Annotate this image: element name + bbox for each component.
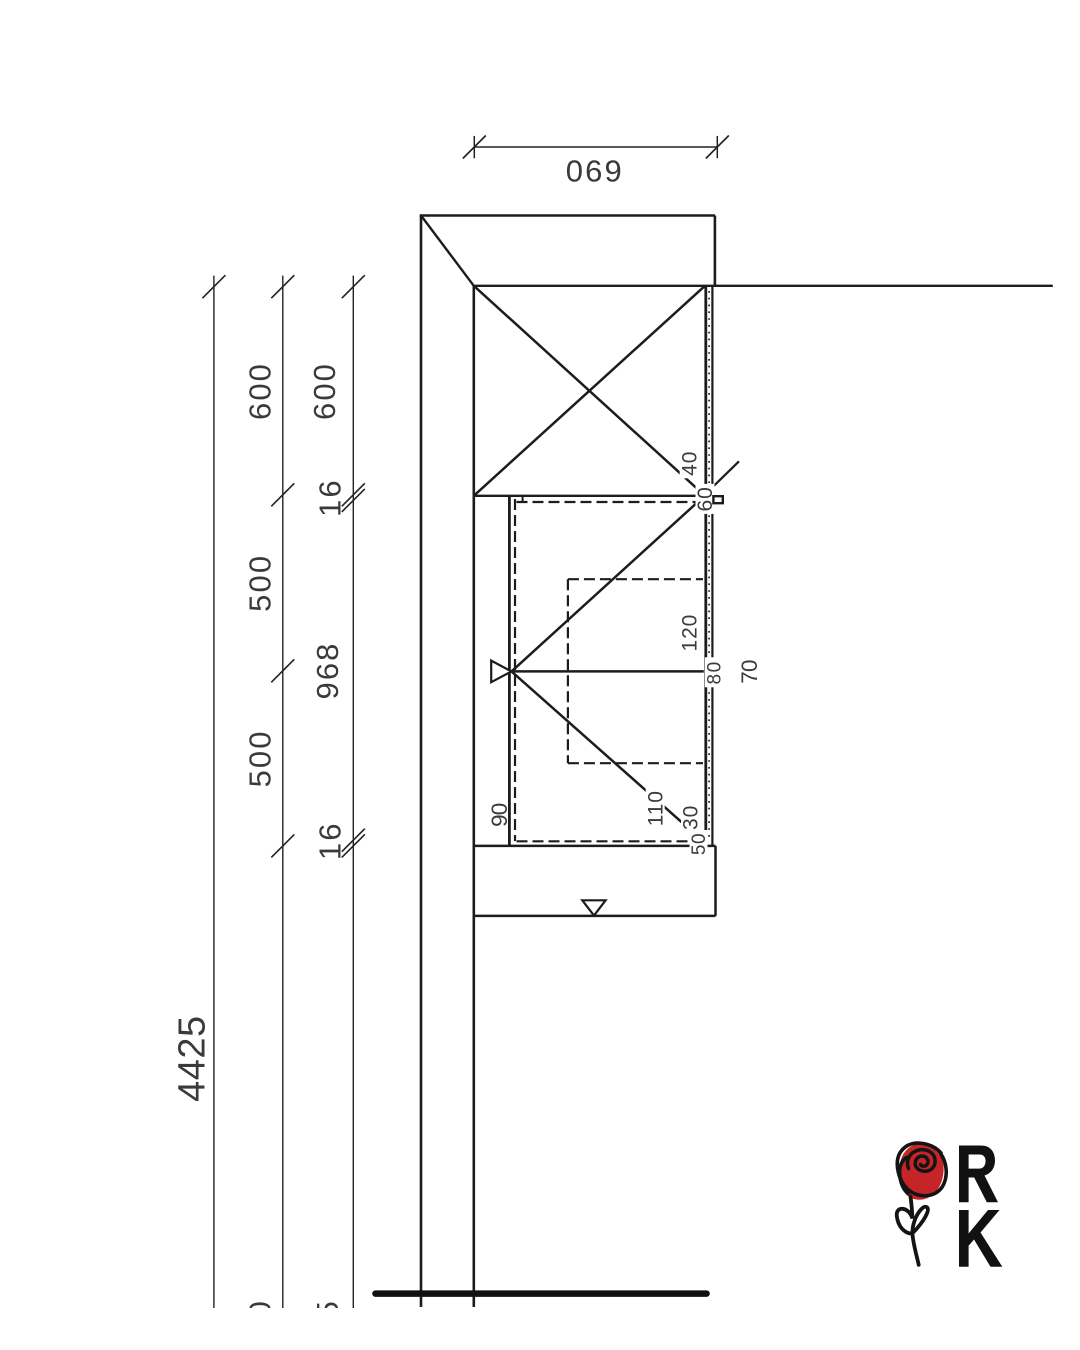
svg-text:16: 16 xyxy=(313,478,348,517)
svg-text:500: 500 xyxy=(243,554,278,612)
svg-text:069: 069 xyxy=(566,154,624,189)
svg-text:968: 968 xyxy=(310,641,345,699)
svg-text:120: 120 xyxy=(678,614,701,652)
svg-text:40: 40 xyxy=(678,451,701,476)
svg-text:600: 600 xyxy=(307,362,342,420)
svg-text:50: 50 xyxy=(689,833,710,855)
svg-text:110: 110 xyxy=(644,790,667,826)
svg-text:70: 70 xyxy=(737,660,762,684)
svg-text:90: 90 xyxy=(487,803,512,827)
svg-text:16: 16 xyxy=(313,821,348,860)
svg-text:4425: 4425 xyxy=(171,1015,213,1102)
svg-text:30: 30 xyxy=(680,805,703,830)
svg-text:600: 600 xyxy=(243,362,278,420)
svg-text:80: 80 xyxy=(704,660,725,684)
svg-text:500: 500 xyxy=(243,729,278,787)
